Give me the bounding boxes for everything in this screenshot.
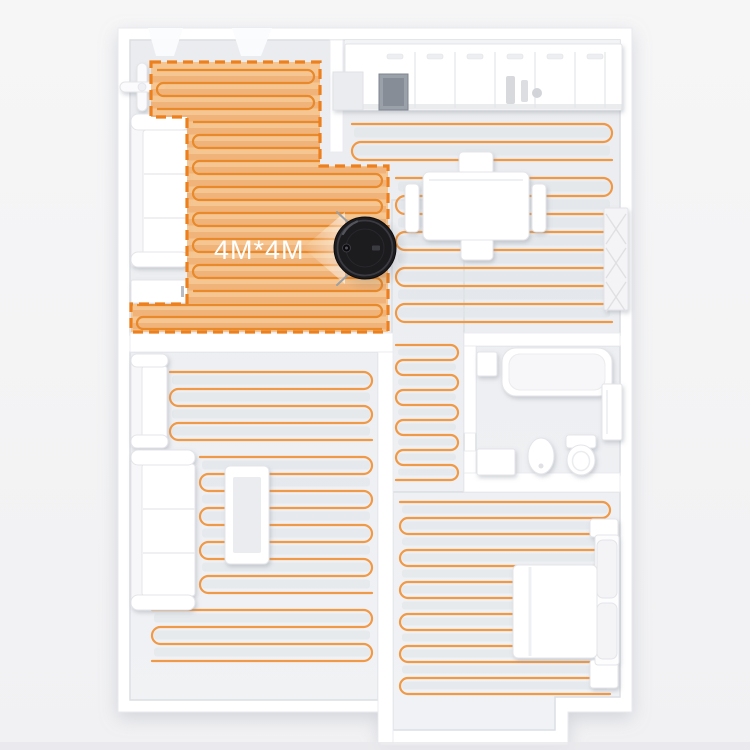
bathtub: [502, 348, 612, 396]
faucet: [506, 76, 515, 104]
wall-divider-bottom: [378, 352, 393, 743]
wall-bathroom-left-lower: [464, 451, 476, 475]
toilet: [566, 435, 596, 475]
wall-middle: [130, 333, 393, 352]
bathroom-door: [602, 384, 622, 440]
path-corridor: [396, 345, 458, 480]
product-illustration: 4M*4M: [0, 0, 750, 750]
zone-label: 4M*4M: [214, 235, 305, 265]
floorplan-illustration: 4M*4M: [0, 0, 750, 750]
coffee-table: [225, 466, 269, 564]
robot-logo: [372, 246, 380, 251]
kitchen-counter: [333, 44, 622, 110]
sofa-top-room: [131, 114, 189, 267]
background-edge: [0, 742, 750, 750]
armchair: [131, 354, 168, 448]
path-living-bottom: [152, 610, 372, 661]
wall-bathroom-top: [464, 333, 620, 346]
wall-bathroom-left: [464, 346, 476, 433]
kitchen-side-counter: [333, 72, 363, 110]
path-living-top: [170, 372, 372, 440]
bidet: [528, 438, 554, 474]
wall-shelf: [604, 208, 628, 312]
console-cabinet: [131, 280, 188, 303]
sofa-living-room: [131, 450, 195, 610]
wall-bathroom-bottom: [464, 473, 620, 492]
